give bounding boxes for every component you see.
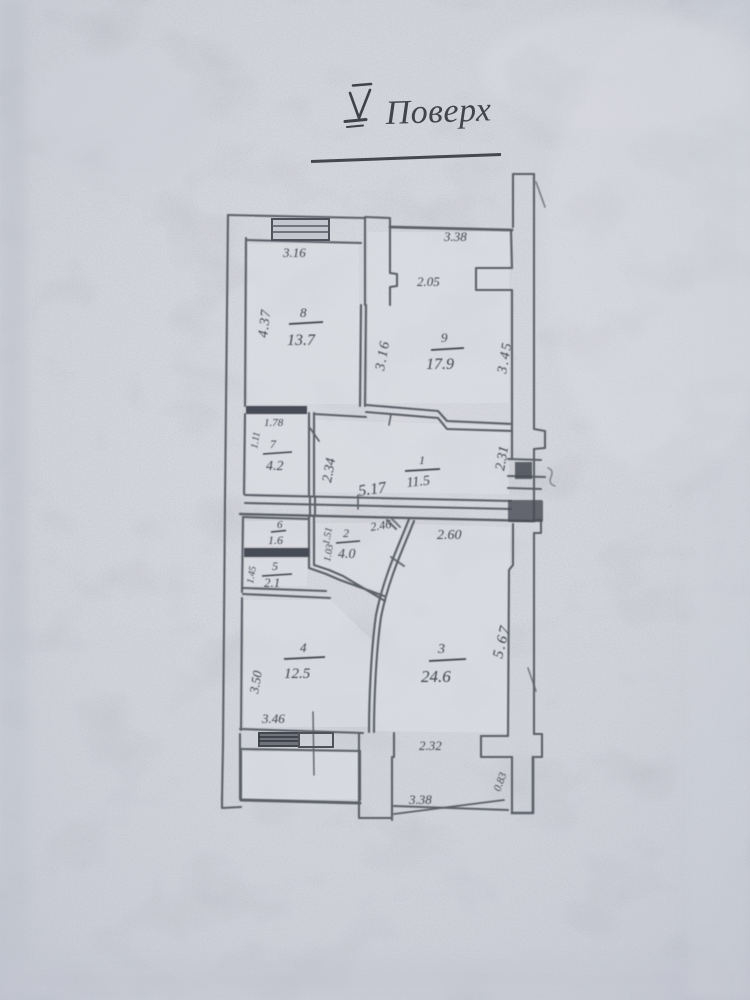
svg-text:3: 3: [437, 642, 445, 657]
svg-text:2.1: 2.1: [264, 575, 280, 590]
svg-text:11.5: 11.5: [406, 474, 431, 491]
svg-text:2: 2: [343, 526, 349, 540]
svg-text:5: 5: [272, 559, 278, 573]
svg-text:4: 4: [300, 640, 307, 655]
svg-text:8: 8: [300, 305, 307, 320]
svg-text:13.7: 13.7: [287, 332, 316, 349]
svg-text:3.38: 3.38: [408, 792, 432, 807]
svg-text:6: 6: [277, 519, 283, 531]
svg-text:2.32: 2.32: [419, 738, 442, 753]
svg-text:3.16: 3.16: [282, 245, 306, 260]
svg-text:7: 7: [270, 437, 277, 451]
svg-text:1: 1: [419, 453, 425, 467]
svg-text:Поверх: Поверх: [384, 91, 492, 132]
svg-text:3.46: 3.46: [261, 711, 285, 726]
svg-text:17.9: 17.9: [426, 356, 454, 373]
svg-text:2.05: 2.05: [417, 274, 440, 289]
svg-text:12.5: 12.5: [284, 666, 311, 682]
svg-text:4.0: 4.0: [338, 547, 356, 562]
svg-text:4.2: 4.2: [266, 459, 284, 474]
svg-text:1.6: 1.6: [268, 533, 283, 547]
svg-text:24.6: 24.6: [421, 667, 451, 686]
svg-text:2.60: 2.60: [437, 528, 462, 543]
svg-text:3.38: 3.38: [443, 229, 467, 244]
svg-text:9: 9: [441, 330, 448, 345]
svg-text:1.78: 1.78: [264, 417, 284, 429]
